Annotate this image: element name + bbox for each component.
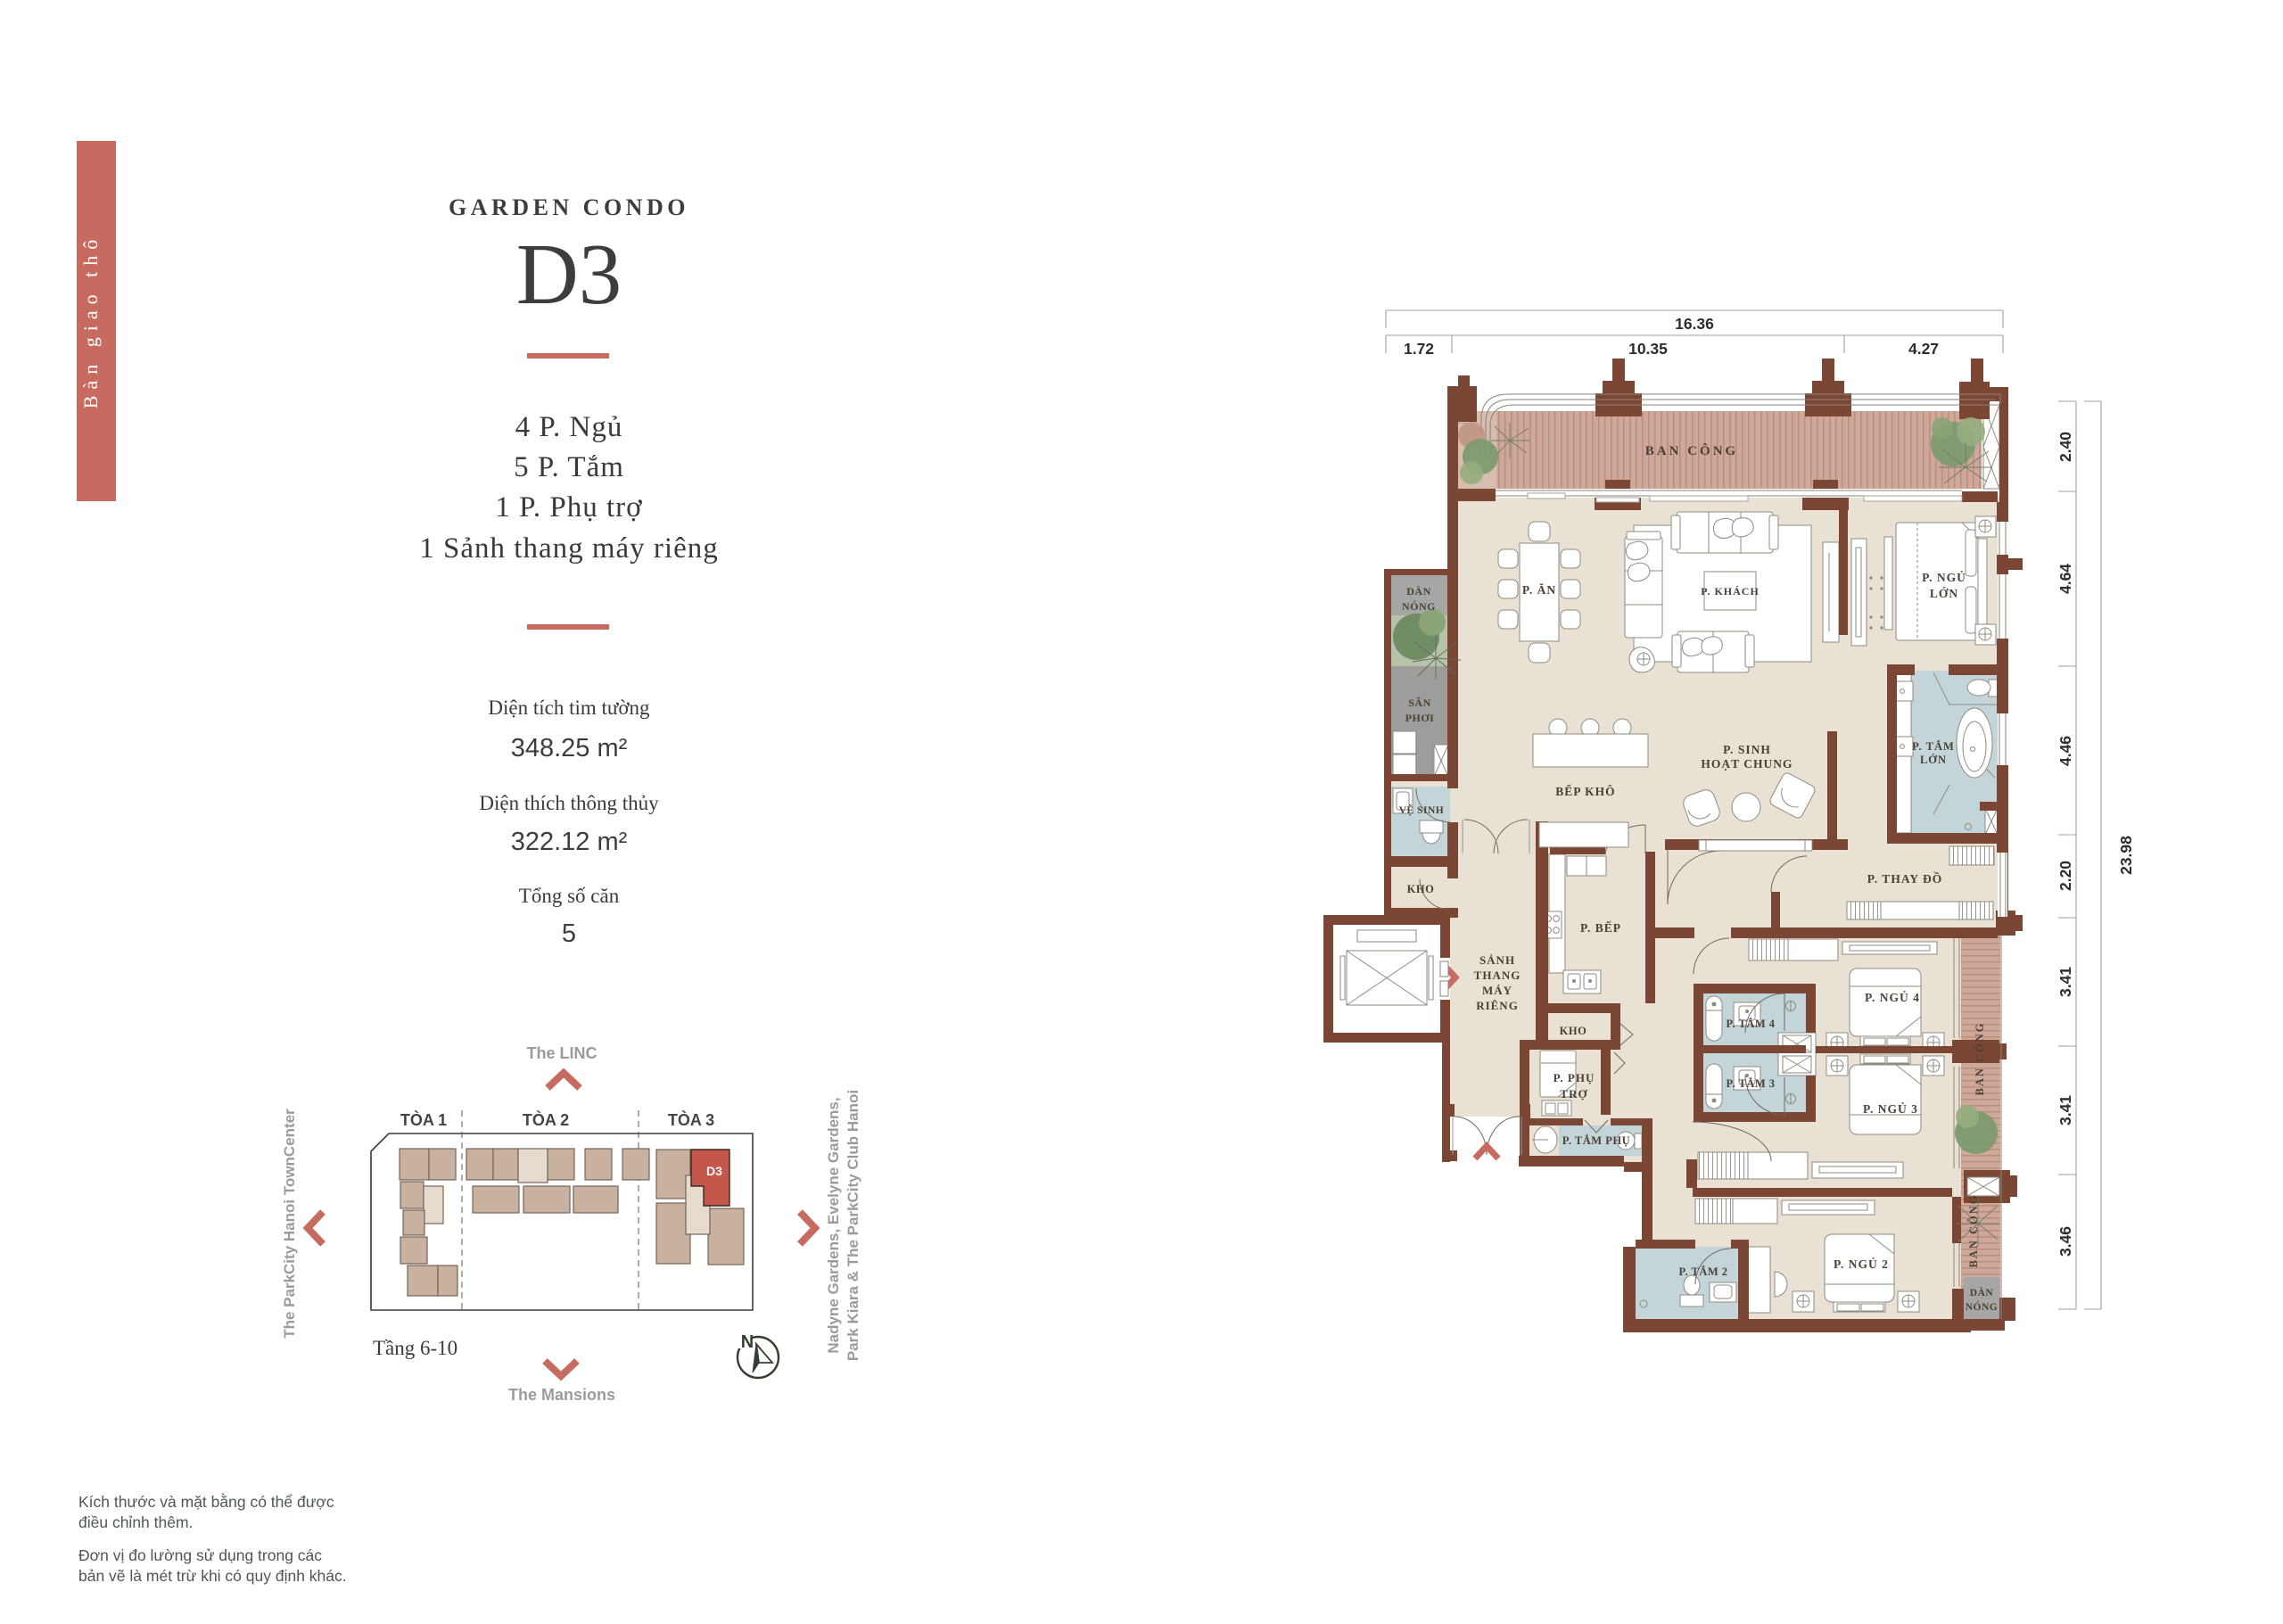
svg-text:P. THAY ĐỒ: P. THAY ĐỒ (1867, 872, 1942, 886)
svg-text:P. BẾP: P. BẾP (1580, 921, 1621, 935)
svg-text:4 P. Ngủ: 4 P. Ngủ (515, 411, 623, 443)
svg-text:1 P. Phụ trợ: 1 P. Phụ trợ (495, 491, 642, 523)
svg-text:P. TẮM PHỤ: P. TẮM PHỤ (1562, 1134, 1630, 1147)
svg-text:P. TẮM 2: P. TẮM 2 (1678, 1265, 1727, 1278)
svg-text:NÓNG: NÓNG (1402, 600, 1436, 613)
svg-text:SÂN: SÂN (1408, 697, 1431, 709)
svg-text:3.46: 3.46 (2056, 1226, 2074, 1257)
svg-text:3.41: 3.41 (2056, 1095, 2074, 1125)
svg-text:The ParkCity Hanoi TownCenter: The ParkCity Hanoi TownCenter (281, 1109, 298, 1339)
svg-text:DÀN: DÀN (1970, 1286, 1994, 1298)
svg-text:Bàn giao thô: Bàn giao thô (79, 234, 102, 408)
svg-text:TRỢ: TRỢ (1560, 1087, 1587, 1101)
svg-text:D3: D3 (516, 227, 622, 322)
svg-text:Park Kiara & The ParkCity Club: Park Kiara & The ParkCity Club Hanoi (845, 1090, 861, 1361)
svg-text:P. PHỤ: P. PHỤ (1554, 1071, 1595, 1084)
svg-text:4.27: 4.27 (1908, 340, 1939, 358)
svg-text:KHO: KHO (1560, 1025, 1587, 1037)
svg-text:TÒA 2: TÒA 2 (523, 1110, 569, 1129)
svg-text:BAN CÔNG: BAN CÔNG (1645, 443, 1738, 458)
svg-text:KHO: KHO (1407, 883, 1435, 895)
svg-text:5 P. Tắm: 5 P. Tắm (514, 451, 624, 483)
svg-text:P. NGỦ 4: P. NGỦ 4 (1865, 991, 1920, 1004)
svg-text:điều chỉnh thêm.: điều chỉnh thêm. (78, 1513, 193, 1531)
svg-text:Kích thước và mặt bằng có thể: Kích thước và mặt bằng có thể được (78, 1492, 334, 1511)
svg-text:P. NGỦ 3: P. NGỦ 3 (1863, 1102, 1918, 1116)
svg-text:23.98: 23.98 (2117, 836, 2135, 875)
svg-text:LỚN: LỚN (1930, 587, 1958, 600)
svg-text:TÒA 3: TÒA 3 (668, 1110, 714, 1129)
svg-text:DÀN: DÀN (1406, 585, 1431, 598)
svg-text:1 Sảnh thang máy riêng: 1 Sảnh thang máy riêng (419, 532, 718, 565)
svg-text:Đơn vị đo lường sử dụng trong: Đơn vị đo lường sử dụng trong các (78, 1546, 322, 1564)
svg-text:Diện tích tim tường: Diện tích tim tường (488, 697, 650, 719)
svg-text:322.12 m²: 322.12 m² (511, 828, 628, 856)
svg-text:5: 5 (562, 919, 576, 948)
svg-text:P. KHÁCH: P. KHÁCH (1701, 585, 1760, 598)
svg-text:BAN CÔNG: BAN CÔNG (1967, 1193, 1980, 1267)
svg-text:BAN CÔNG: BAN CÔNG (1974, 1021, 1986, 1095)
svg-text:Diện thích thông thủy: Diện thích thông thủy (479, 792, 659, 814)
svg-text:P. NGỦ: P. NGỦ (1922, 571, 1966, 584)
svg-text:bản vẽ là mét trừ khi có quy đ: bản vẽ là mét trừ khi có quy định khác. (78, 1567, 347, 1585)
svg-text:D3: D3 (706, 1164, 722, 1178)
svg-text:BẾP KHÔ: BẾP KHÔ (1555, 785, 1615, 798)
svg-text:SẢNH: SẢNH (1479, 953, 1515, 967)
svg-text:RIÊNG: RIÊNG (1476, 999, 1519, 1012)
svg-text:348.25 m²: 348.25 m² (511, 734, 628, 763)
svg-text:TÒA 1: TÒA 1 (400, 1110, 447, 1129)
svg-text:2.40: 2.40 (2056, 432, 2074, 462)
svg-text:GARDEN CONDO: GARDEN CONDO (449, 194, 689, 220)
svg-text:4.46: 4.46 (2056, 736, 2074, 766)
svg-text:Nadyne Gardens, Evelyne Garden: Nadyne Gardens, Evelyne Gardens, (825, 1097, 842, 1353)
svg-text:MÁY: MÁY (1482, 984, 1512, 997)
svg-text:2.20: 2.20 (2056, 861, 2074, 891)
svg-text:N: N (741, 1332, 754, 1352)
svg-text:P. NGỦ 2: P. NGỦ 2 (1834, 1257, 1889, 1271)
svg-text:Tầng 6-10: Tầng 6-10 (373, 1337, 457, 1359)
svg-text:VỆ SINH: VỆ SINH (1399, 804, 1444, 816)
svg-text:P. TẮM 4: P. TẮM 4 (1726, 1017, 1775, 1030)
svg-text:PHƠI: PHƠI (1405, 712, 1435, 724)
svg-text:LỚN: LỚN (1920, 754, 1947, 766)
svg-text:1.72: 1.72 (1404, 340, 1434, 358)
svg-text:P. SINH: P. SINH (1723, 743, 1771, 756)
svg-text:THANG: THANG (1474, 969, 1521, 982)
svg-text:HOẠT CHUNG: HOẠT CHUNG (1701, 757, 1793, 771)
svg-text:NÓNG: NÓNG (1966, 1300, 1999, 1313)
svg-text:P. ĂN: P. ĂN (1522, 583, 1556, 597)
svg-text:Tổng số căn: Tổng số căn (519, 885, 620, 907)
svg-text:The Mansions: The Mansions (508, 1386, 615, 1404)
svg-text:The LINC: The LINC (527, 1044, 598, 1062)
svg-text:4.64: 4.64 (2056, 564, 2074, 594)
svg-text:3.41: 3.41 (2056, 967, 2074, 997)
svg-text:P. TẮM: P. TẮM (1912, 739, 1955, 753)
svg-text:10.35: 10.35 (1628, 340, 1668, 358)
svg-text:16.36: 16.36 (1675, 315, 1714, 333)
svg-text:P. TẮM 3: P. TẮM 3 (1726, 1076, 1775, 1090)
